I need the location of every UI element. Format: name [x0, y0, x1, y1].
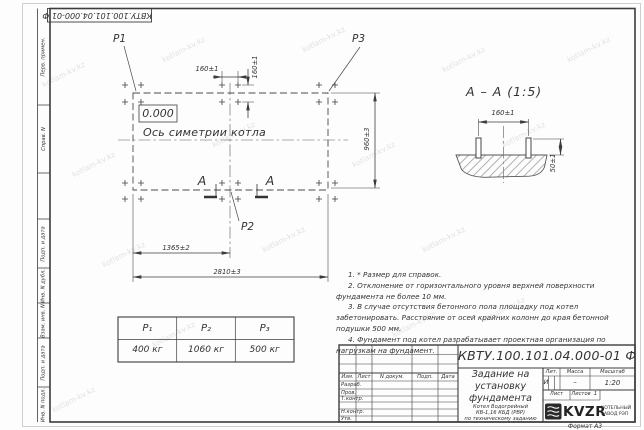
dim-bolt-spacing-y: 160±1: [251, 52, 259, 82]
load-table-value-p1: 400 кг: [118, 341, 177, 360]
anchor-bolt: [526, 138, 531, 158]
scale-label: Масштаб: [590, 369, 635, 375]
row-prov: Пров.: [341, 390, 356, 396]
section-letter-right: А: [263, 173, 277, 188]
notes-block: 1. * Размер для справок. 2. Отклонение о…: [336, 270, 634, 356]
dim-to-center: 1365±2: [150, 244, 202, 252]
load-table-value-p2: 1060 кг: [177, 341, 236, 360]
symmetry-axis-label: Ось симетрии котла: [143, 126, 266, 139]
col-n-dokum: N докум.: [372, 374, 412, 382]
col-data: Дата: [438, 374, 458, 382]
dim-total-width: 2810±3: [201, 268, 253, 276]
company-name-line-2: ЗАВОД РЭП: [601, 412, 628, 417]
doc-subtitle-line-2: КВ-1,16 КБД (РВР): [458, 410, 543, 416]
dim-foundation-depth: 960±3: [363, 122, 371, 156]
load-table-value-p3: 500 кг: [235, 341, 294, 360]
section-view: [456, 119, 564, 183]
top-stamp-doc-number: КВТУ.100.101.04.000-01 Ф: [47, 8, 152, 22]
sheets-value: 1: [591, 391, 600, 397]
scale-value: 1:20: [590, 379, 635, 387]
doc-subtitle-line-3: по техническому заданию: [458, 416, 543, 422]
dim-bolt-spacing-x: 160±1: [187, 65, 227, 73]
drawing-sheet: kotlam-kv.kz kotlam-kv.kz kotlam-kv.kz k…: [0, 0, 644, 430]
section-letter-left: А: [195, 173, 209, 188]
sheets-label: Листов: [569, 391, 593, 397]
frame-field-podp-data: Подп. и дата: [39, 219, 49, 268]
dim-section-bolt-spacing: 160±1: [483, 109, 523, 117]
doc-title-line-1: Задание на: [458, 369, 543, 380]
sheet-frame: [23, 4, 641, 427]
row-tkontr: Т.контр.: [341, 396, 363, 402]
dim-bolt-protrusion: 50±1: [549, 148, 557, 178]
row-razrab: Разраб.: [341, 382, 361, 388]
section-title: А – А (1:5): [466, 84, 542, 99]
concrete-pad: [456, 155, 547, 177]
col-podp: Подп.: [412, 374, 438, 382]
load-table-header-p3: P₃: [235, 319, 294, 339]
frame-field-sprav-n: Справ. N: [39, 105, 49, 173]
frame-field-inv-podl: Инв. N подл.: [39, 387, 49, 422]
sheet-label: Лист: [543, 391, 570, 397]
lit-label: Лит.: [543, 369, 560, 375]
mass-value: –: [560, 378, 590, 386]
note-1: 1. * Размер для справок.: [336, 270, 634, 281]
doc-title-line-3: фундамента: [458, 393, 543, 404]
frame-field-inv-dubl: Инв. N дубл.: [39, 268, 49, 303]
kvzr-coil-icon: [545, 404, 562, 420]
title-block-doc-number: КВТУ.100.101.04.000-01 Ф: [458, 348, 635, 363]
row-nkontr: Н.контр.: [341, 409, 364, 415]
note-2: 2. Отклонение от горизонтального уровня …: [336, 281, 634, 303]
frame-field-perv-primen: Перв. примен.: [39, 8, 49, 105]
lit-value: И: [542, 378, 550, 386]
mass-label: Масса: [560, 369, 590, 375]
frame-field-podp-data-2: Подп. и дата: [39, 338, 49, 387]
kvzr-logo-text: KVZR: [563, 404, 606, 420]
elevation-mark: 0.000: [139, 105, 177, 122]
doc-subtitle-line-1: Котел Водогрейный: [458, 404, 543, 410]
col-izm: Изм.: [339, 374, 356, 382]
load-table-header-p2: P₂: [177, 319, 236, 339]
frame-field-vzam-inv: Взам. инв. N: [39, 303, 49, 338]
load-point-p3-label: P3: [352, 33, 365, 45]
section-cut-marks: [204, 184, 268, 197]
note-3: 3. В случае отсутствия бетонного пола пл…: [336, 302, 634, 334]
doc-title-line-2: установку: [458, 381, 543, 392]
load-point-p2-label: P2: [241, 221, 254, 233]
load-table-header-p1: P₁: [118, 319, 177, 339]
format-label: Формат А3: [564, 423, 606, 430]
drawing-linework: [0, 0, 644, 430]
row-utv: Утв.: [341, 416, 352, 422]
company-name-line-1: КОТЕЛЬНЫЙ: [601, 406, 631, 411]
anchor-bolt: [476, 138, 481, 158]
col-list: Лист: [356, 374, 372, 382]
load-point-p1-label: P1: [113, 33, 126, 45]
